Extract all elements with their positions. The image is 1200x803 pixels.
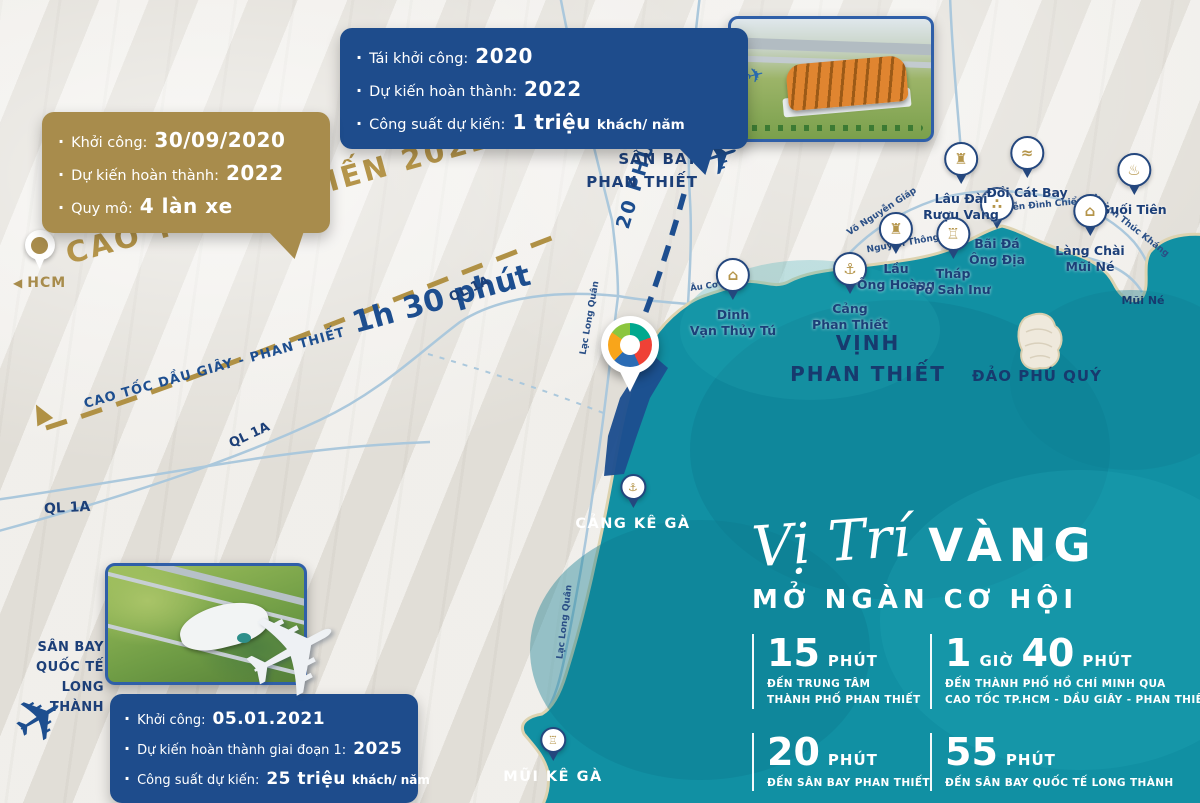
callout-suffix: khách/ năm <box>597 114 685 136</box>
cham-tower-icon: ♖ <box>946 225 959 243</box>
island-label: ĐẢO PHÚ QUÝ <box>962 367 1112 385</box>
port-icon: ⚓ <box>843 260 856 278</box>
marker-cang-ke-ga: ⚓ CẢNG KÊ GÀ <box>575 474 690 533</box>
stat-city-center: 15PHÚT ĐẾN TRUNG TÂMTHÀNH PHỐ PHAN THIẾT <box>752 634 930 709</box>
stat-hcmc: 1GIỜ40PHÚT ĐẾN THÀNH PHỐ HỒ CHÍ MINH QUA… <box>930 634 1200 709</box>
marker-tail <box>628 499 638 513</box>
callout-value: 2020 <box>475 40 533 73</box>
logo-core <box>620 335 640 355</box>
callout-label: Công suất dự kiến: <box>369 114 505 138</box>
callout-value: 4 làn xe <box>140 190 233 223</box>
castle-icon: ♜ <box>954 150 967 168</box>
callout-label: Dự kiến hoàn thành giai đoạn 1: <box>137 740 346 763</box>
bay-label-line: PHAN THIẾT <box>780 359 956 390</box>
marker-tail <box>548 752 558 766</box>
marker-label: ThápPo Sah Inư <box>915 266 990 297</box>
marker-label: DinhVạn Thủy Tú <box>690 307 776 338</box>
callout-value: 25 triệu <box>266 765 346 795</box>
marker-tail <box>728 291 738 305</box>
callout-label: Công suất dự kiến: <box>137 770 259 793</box>
mui-ne-label: Mũi Né <box>1108 294 1178 307</box>
marker-label: Làng ChàiMũi Né <box>1055 243 1124 274</box>
pin-disc <box>601 316 659 374</box>
marker-tail <box>956 175 966 189</box>
fishing-village-icon: ⌂ <box>1085 202 1096 220</box>
callout-label: Quy mô: <box>71 198 133 222</box>
headline-line2: MỞ NGÀN CƠ HỘI <box>752 585 1097 615</box>
tower-icon: ♜ <box>889 220 902 238</box>
callout-label: Khởi công: <box>71 132 147 156</box>
project-logo-ring <box>608 323 652 367</box>
marker-label: MŨI KÊ GÀ <box>503 768 602 786</box>
bay-label: VỊNH PHAN THIẾT <box>780 328 956 390</box>
callout-value: 2022 <box>524 73 582 106</box>
marker-tail <box>1085 227 1095 241</box>
pin-disc <box>25 230 55 260</box>
callout-value: 2025 <box>353 735 402 765</box>
callout-suffix: khách/ năm <box>352 770 430 791</box>
long-thanh-callout: Khởi công:05.01.2021 Dự kiến hoàn thành … <box>110 694 418 803</box>
callout-label: Dự kiến hoàn thành: <box>71 165 219 189</box>
marker-tail <box>948 250 958 264</box>
marker-doi-cat-bay: ≈ Đồi Cát Bay <box>986 136 1067 201</box>
stream-icon: ♨ <box>1127 161 1140 179</box>
hcm-pin: HCM <box>13 230 66 291</box>
hcm-text: HCM <box>27 275 66 291</box>
stats-grid: 15PHÚT ĐẾN TRUNG TÂMTHÀNH PHỐ PHAN THIẾT… <box>752 634 1200 791</box>
expressway-callout: Khởi công:30/09/2020 Dự kiến hoàn thành:… <box>42 112 330 233</box>
arrow-left-icon <box>13 275 23 291</box>
callout-label: Tái khởi công: <box>369 48 468 72</box>
map-infographic: Tái khởi công:2020 Dự kiến hoàn thành:20… <box>0 0 1200 803</box>
sand-dune-icon: ≈ <box>1021 144 1034 162</box>
headline-caps: VÀNG <box>928 523 1097 568</box>
headline-script: Vị Trí <box>750 510 912 577</box>
callout-value: 1 triệu <box>512 106 590 139</box>
marker-lang-chai-mui-ne: ⌂ Làng ChàiMũi Né <box>1055 194 1124 274</box>
marker-tail <box>891 245 901 259</box>
runway <box>728 37 934 56</box>
airport-label-line: SÂN BAY <box>14 638 104 658</box>
lighthouse-icon: ♖ <box>548 734 558 747</box>
bay-label-line: VỊNH <box>780 328 956 359</box>
phan-thiet-airport-render: ✈ <box>728 16 934 142</box>
callout-label: Dự kiến hoàn thành: <box>369 81 517 105</box>
trees <box>739 125 923 131</box>
callout-value: 30/09/2020 <box>154 124 285 157</box>
project-location-pin <box>601 316 659 392</box>
headline: Vị Trí VÀNG MỞ NGÀN CƠ HỘI <box>752 515 1097 615</box>
marker-label: Bãi ĐáÔng Địa <box>969 236 1025 267</box>
phan-thiet-airport-callout: Tái khởi công:2020 Dự kiến hoàn thành:20… <box>340 28 748 149</box>
callout-label: Khởi công: <box>137 710 205 733</box>
temple-icon: ⌂ <box>728 266 739 284</box>
road-label-ql1a: QL 1A <box>44 499 91 517</box>
marker-label: CảngPhan Thiết <box>812 301 888 332</box>
airport-label-line: QUỐC TẾ <box>14 658 104 678</box>
port-icon: ⚓ <box>628 481 638 494</box>
marker-tail <box>845 285 855 299</box>
marker-tail <box>1129 186 1139 200</box>
pin-core <box>31 237 48 254</box>
hcm-label: HCM <box>13 275 66 291</box>
marker-label: CẢNG KÊ GÀ <box>575 515 690 533</box>
airport-label-line: SÂN BAY <box>586 148 698 171</box>
callout-value: 2022 <box>226 157 284 190</box>
stat-pt-airport: 20PHÚT ĐẾN SÂN BAY PHAN THIẾT <box>752 733 930 792</box>
stat-lt-airport: 55PHÚT ĐẾN SÂN BAY QUỐC TẾ LONG THÀNH <box>930 733 1200 792</box>
marker-dinh-van-thuy-tu: ⌂ DinhVạn Thủy Tú <box>690 258 776 338</box>
pin-tail <box>617 370 643 392</box>
marker-mui-ke-ga: ♖ MŨI KÊ GÀ <box>503 727 602 786</box>
phan-thiet-airport-label: SÂN BAY PHAN THIẾT <box>586 148 698 193</box>
marker-tail <box>1022 169 1032 183</box>
airport-label-line: PHAN THIẾT <box>586 171 698 194</box>
